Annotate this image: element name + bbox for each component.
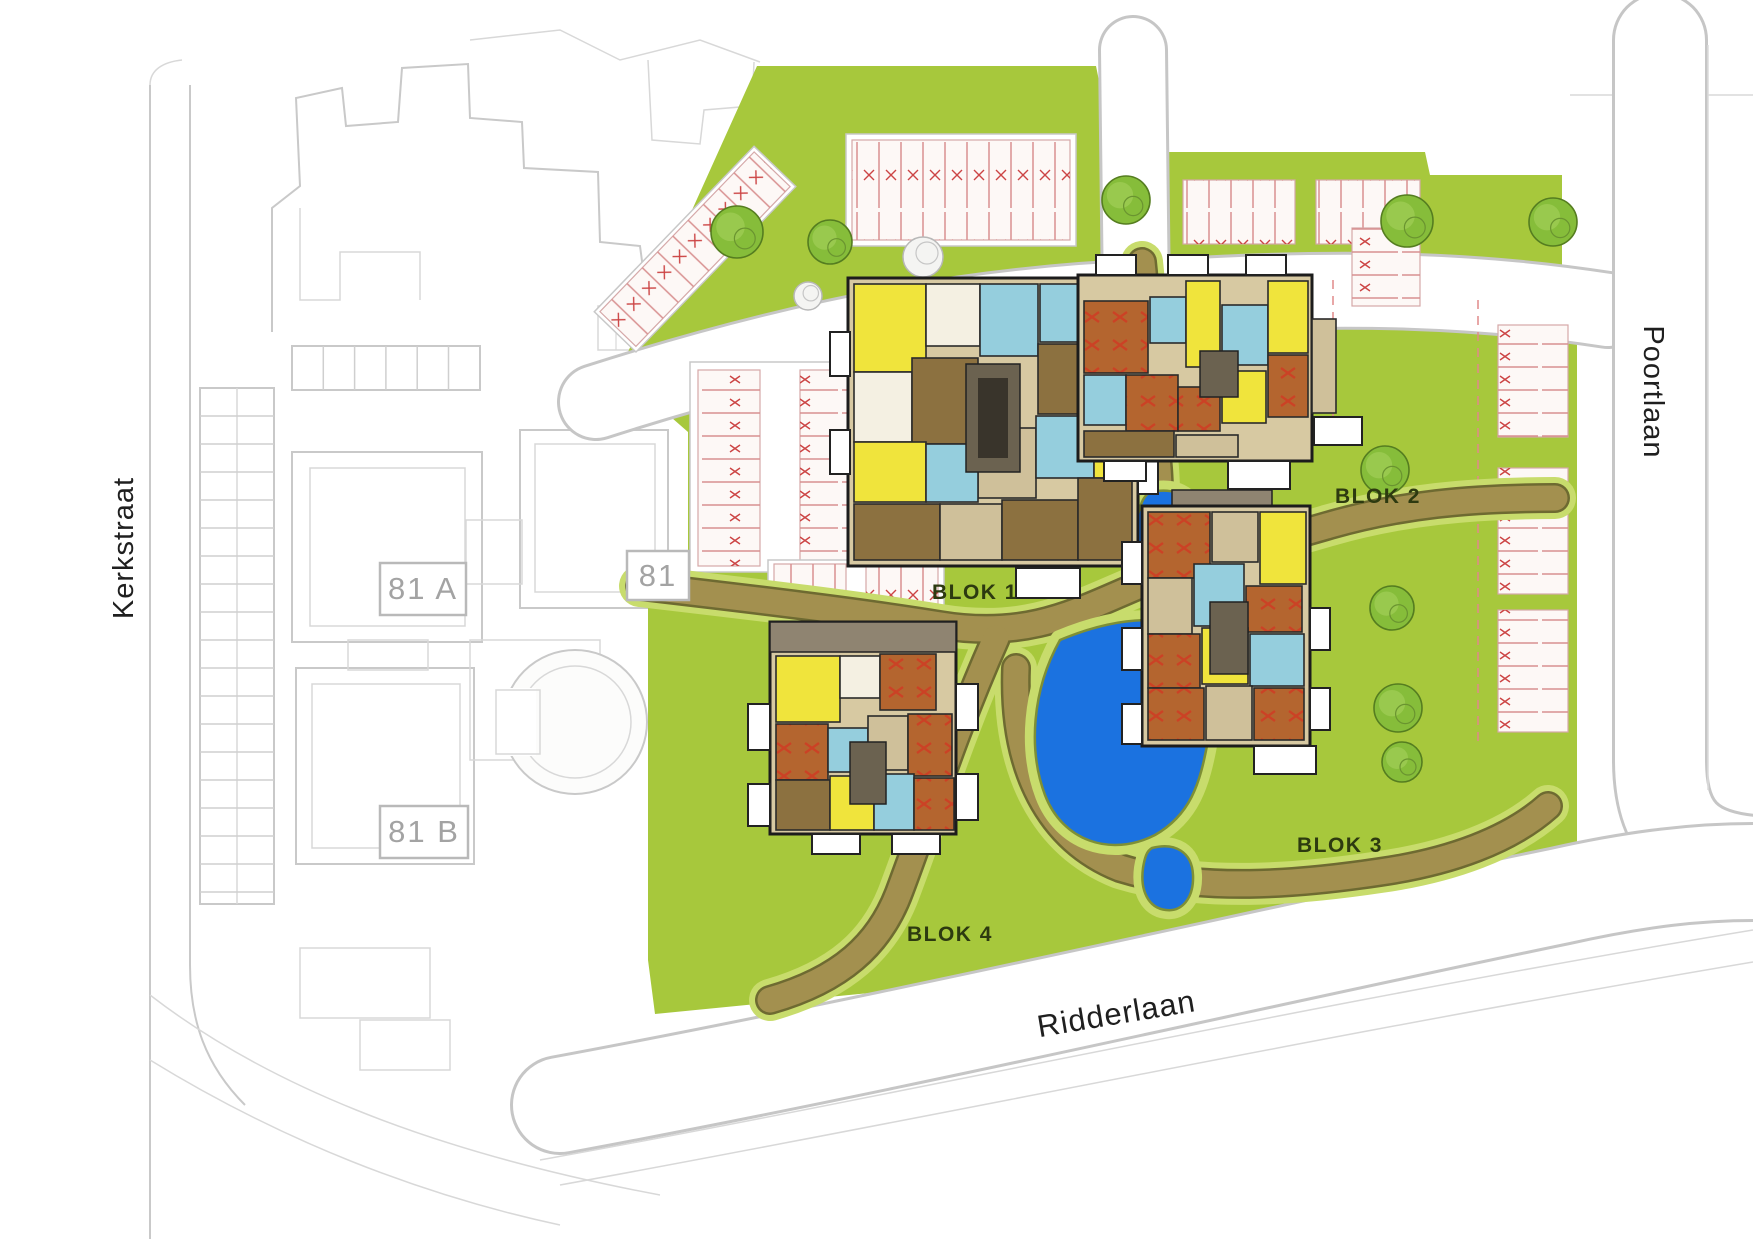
building-81-label: 81 xyxy=(627,551,689,600)
tree-icon xyxy=(1370,586,1414,630)
blok4-building xyxy=(748,622,978,854)
tree-icon xyxy=(1382,742,1422,782)
blok3-building xyxy=(1122,490,1330,774)
svg-text:81: 81 xyxy=(639,558,677,593)
sketch-tree-icon xyxy=(794,282,822,310)
tree-icon xyxy=(808,220,852,264)
svg-text:81 B: 81 B xyxy=(388,814,460,849)
pond-tail xyxy=(1142,846,1193,910)
street-poortlaan: Poortlaan xyxy=(1637,325,1669,458)
tree-icon xyxy=(1374,684,1422,732)
site-plan: BLOK 1 BLOK 2 BLOK 3 BLOK 4 81 A 81 81 B… xyxy=(0,0,1753,1239)
blok4-label: BLOK 4 xyxy=(907,923,993,946)
site-plan-canvas: BLOK 1 BLOK 2 BLOK 3 BLOK 4 81 A 81 81 B… xyxy=(0,0,1753,1239)
blok1-label: BLOK 1 xyxy=(932,581,1018,604)
building-81a-label: 81 A xyxy=(380,563,466,615)
tree-icon xyxy=(711,206,763,258)
tree-icon xyxy=(1381,195,1433,247)
street-kerkstraat: Kerkstraat xyxy=(108,477,140,619)
blok2-label: BLOK 2 xyxy=(1335,485,1421,508)
svg-text:81 A: 81 A xyxy=(388,571,458,606)
sketch-tree-icon xyxy=(903,237,943,277)
blok3-label: BLOK 3 xyxy=(1297,834,1383,857)
tree-icon xyxy=(1102,176,1150,224)
tree-icon xyxy=(1529,198,1577,246)
building-81b-label: 81 B xyxy=(380,806,468,858)
